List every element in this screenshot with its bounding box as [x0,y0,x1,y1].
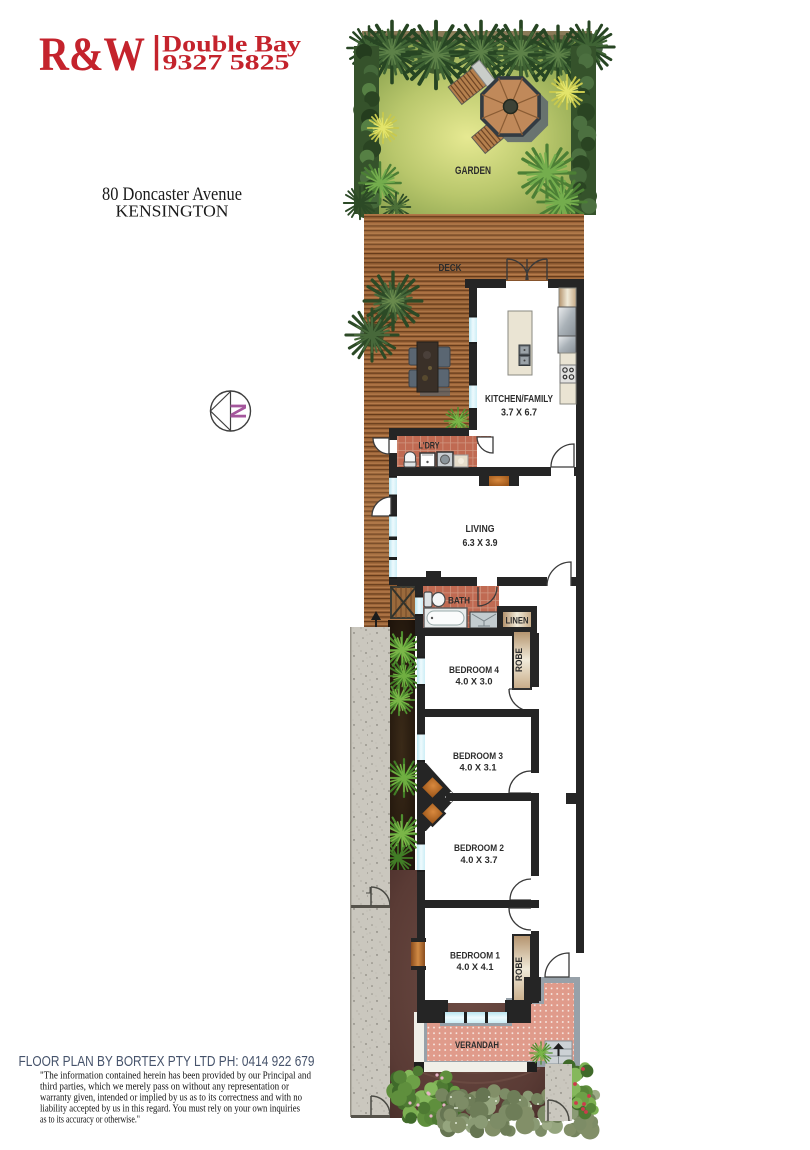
svg-text:BEDROOM 1: BEDROOM 1 [450,951,501,962]
svg-text:VERANDAH: VERANDAH [455,1040,499,1051]
svg-text:4.0 X 3.7: 4.0 X 3.7 [461,855,498,866]
svg-text:3.7 X 6.7: 3.7 X 6.7 [501,408,537,419]
svg-text:N: N [226,403,251,419]
svg-text:KITCHEN/FAMILY: KITCHEN/FAMILY [485,394,553,405]
svg-text:ROBE: ROBE [514,957,524,981]
svg-text:R&W: R&W [39,28,145,81]
svg-text:BEDROOM 3: BEDROOM 3 [453,751,503,762]
svg-text:DECK: DECK [439,263,463,274]
svg-text:as to its accuracy or otherwis: as to its accuracy or otherwise." [40,1114,140,1126]
svg-text:9327 5825: 9327 5825 [163,50,290,75]
svg-text:4.0 X 3.0: 4.0 X 3.0 [456,677,493,688]
svg-text:4.0 X 4.1: 4.0 X 4.1 [457,962,495,973]
svg-text:6.3 X 3.9: 6.3 X 3.9 [463,538,498,549]
svg-text:BATH: BATH [448,596,470,607]
svg-text:ROBE: ROBE [514,648,524,672]
svg-text:LINEN: LINEN [506,616,529,626]
svg-text:BEDROOM 4: BEDROOM 4 [449,665,500,676]
svg-text:L'DRY: L'DRY [419,441,440,451]
svg-text:GARDEN: GARDEN [455,165,491,177]
svg-text:KENSINGTON: KENSINGTON [116,202,229,221]
svg-text:FLOOR PLAN BY BORTEX PTY LTD P: FLOOR PLAN BY BORTEX PTY LTD PH: 0414 92… [19,1053,315,1070]
svg-text:LIVING: LIVING [466,524,495,535]
svg-text:4.0 X 3.1: 4.0 X 3.1 [460,763,498,774]
svg-text:BEDROOM 2: BEDROOM 2 [454,843,504,854]
